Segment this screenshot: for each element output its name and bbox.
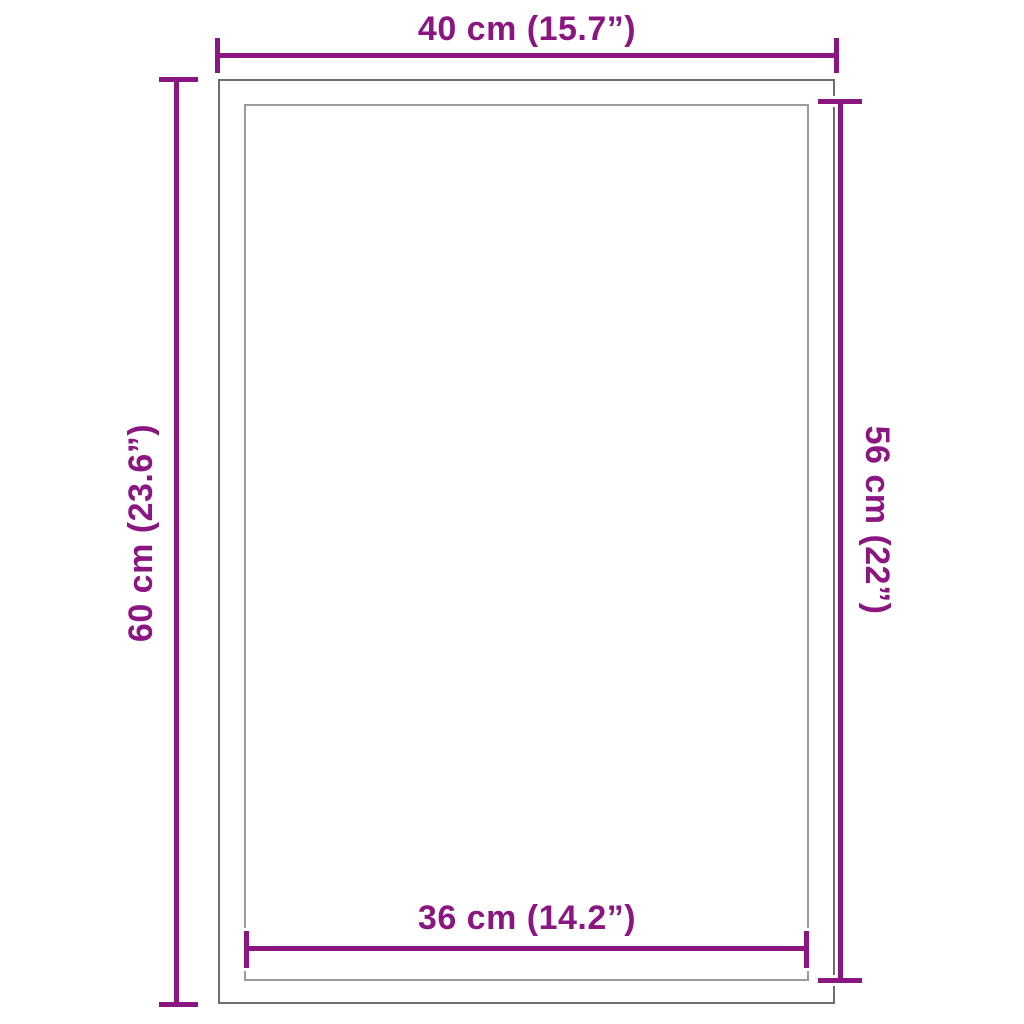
dimension-right-label: 56 cm (22”) xyxy=(860,426,894,615)
dimension-right-line xyxy=(838,101,843,982)
dimension-left-line xyxy=(174,79,179,1005)
inner-rectangle-outline xyxy=(244,104,809,981)
dimension-bottom-line xyxy=(246,946,807,951)
dimension-top-label: 40 cm (15.7”) xyxy=(418,12,636,46)
dimension-left-label: 60 cm (23.6”) xyxy=(124,424,158,642)
dimension-bottom-label: 36 cm (14.2”) xyxy=(418,901,636,935)
dimension-top-line xyxy=(217,53,837,58)
dimension-diagram: 40 cm (15.7”) 60 cm (23.6”) 56 cm (22”) … xyxy=(0,0,1024,1024)
